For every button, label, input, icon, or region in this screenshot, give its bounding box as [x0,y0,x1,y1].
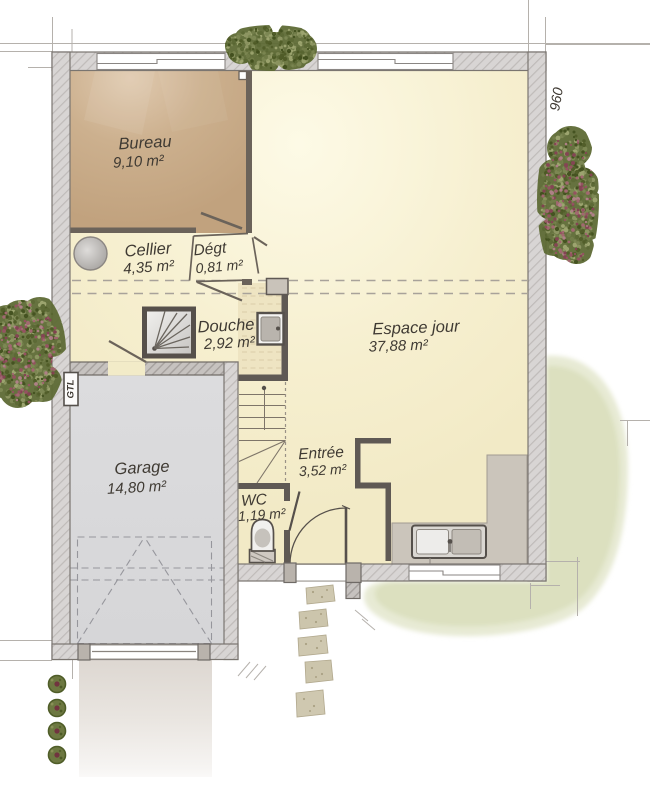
svg-text:Bureau: Bureau [118,133,172,154]
svg-text:14,80 m²: 14,80 m² [107,478,168,498]
svg-text:2,92 m²: 2,92 m² [203,333,257,353]
svg-text:9,10 m²: 9,10 m² [113,152,166,172]
svg-text:Garage: Garage [114,458,170,479]
svg-text:Espace jour: Espace jour [372,317,461,338]
svg-text:960: 960 [546,86,566,112]
svg-text:Dégt: Dégt [193,240,228,260]
svg-text:1,19 m²: 1,19 m² [238,505,288,524]
svg-text:4,35 m²: 4,35 m² [123,257,176,278]
svg-text:GTL: GTL [66,379,77,398]
svg-text:3,52 m²: 3,52 m² [299,461,349,480]
svg-text:37,88 m²: 37,88 m² [368,337,429,356]
